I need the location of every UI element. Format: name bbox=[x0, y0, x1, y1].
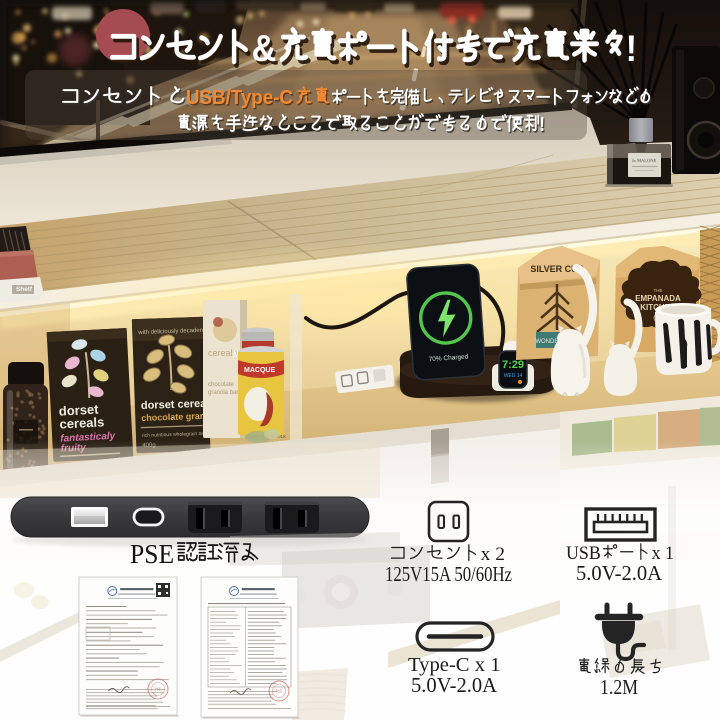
svg-text:x 1: x 1 bbox=[652, 543, 674, 564]
svg-text:&: & bbox=[252, 27, 277, 70]
svg-text:PSE: PSE bbox=[276, 689, 283, 694]
svg-text:5.0V-2.0A: 5.0V-2.0A bbox=[411, 674, 497, 697]
svg-text:5.0V-2.0A: 5.0V-2.0A bbox=[576, 562, 662, 585]
svg-text:USB/Type-C: USB/Type-C bbox=[186, 86, 293, 109]
svg-text:!: ! bbox=[626, 27, 637, 70]
svg-text:1.2M: 1.2M bbox=[600, 677, 638, 700]
svg-text:7:29: 7:29 bbox=[502, 359, 524, 371]
svg-text:EMPANADA: EMPANADA bbox=[635, 294, 681, 303]
svg-text:!: ! bbox=[539, 114, 545, 136]
svg-text:x 2: x 2 bbox=[481, 544, 505, 565]
svg-text:WED 14: WED 14 bbox=[504, 373, 523, 379]
svg-text:PSE: PSE bbox=[155, 687, 162, 692]
svg-text:125V15A 50/60Hz: 125V15A 50/60Hz bbox=[385, 563, 512, 586]
svg-text:granola bars: granola bars bbox=[208, 390, 241, 396]
svg-text:PSE: PSE bbox=[130, 539, 174, 569]
svg-text:Shelf: Shelf bbox=[16, 286, 33, 293]
svg-text:Type-C x 1: Type-C x 1 bbox=[408, 654, 501, 676]
svg-text:chocolate: chocolate bbox=[208, 382, 234, 388]
svg-text:MACQUE: MACQUE bbox=[244, 367, 275, 374]
svg-text:THE: THE bbox=[654, 288, 663, 293]
svg-text:Jo MALONE: Jo MALONE bbox=[632, 158, 657, 163]
svg-text:USB: USB bbox=[566, 543, 601, 564]
svg-text:cereals: cereals bbox=[59, 414, 105, 431]
